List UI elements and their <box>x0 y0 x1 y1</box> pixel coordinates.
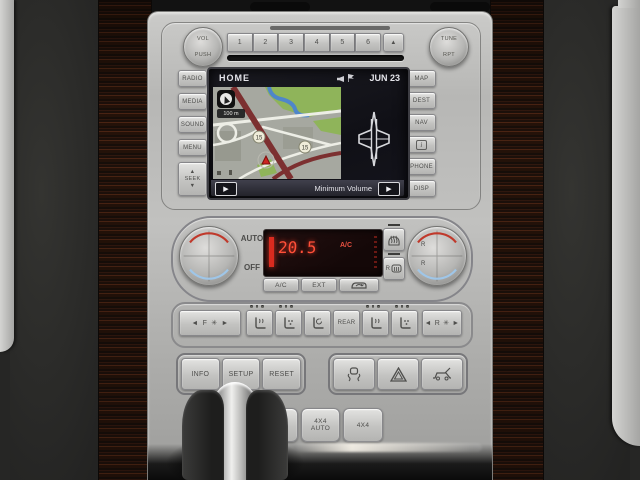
dest-button[interactable]: DEST <box>407 92 436 109</box>
preset-3-button[interactable]: 3 <box>278 33 304 52</box>
mode-4x4-auto-line1: 4X4 <box>314 418 326 425</box>
play-icon-right: ▶ <box>386 185 391 193</box>
knob-r-label-top: R <box>421 242 425 248</box>
heated-seat-left-button[interactable] <box>246 310 273 336</box>
preset-5-button[interactable]: 5 <box>330 33 356 52</box>
climate-auto-button[interactable]: AUTO <box>239 232 265 245</box>
volume-knob-push-label: PUSH <box>184 52 222 58</box>
rear-defrost-button[interactable]: R <box>383 257 405 280</box>
recirculation-button[interactable] <box>339 278 379 292</box>
rear-defrost-icon <box>391 263 402 274</box>
softkey-right[interactable]: ▶ <box>378 182 400 196</box>
temperature-readout: 20.5 <box>277 238 317 257</box>
nav-screen[interactable]: HOME JUN 23 15 15 <box>207 67 410 200</box>
rear-fan-increase[interactable]: ► <box>452 320 459 327</box>
seek-down-icon[interactable]: ▼ <box>190 183 196 189</box>
radio-button[interactable]: RADIO <box>178 70 207 87</box>
tune-knob-label: TUNE <box>430 36 468 42</box>
route-shield-a: 15 <box>256 136 263 142</box>
heated-seat-icon <box>253 317 266 330</box>
menu-button[interactable]: MENU <box>178 139 207 156</box>
liftgate-icon <box>432 367 452 381</box>
heated-seat-left-level <box>250 305 264 308</box>
front-zone-label: F <box>203 320 208 327</box>
sensor-strip <box>270 26 390 30</box>
volume-knob[interactable]: VOL PUSH <box>183 27 223 67</box>
preset-6-button[interactable]: 6 <box>355 33 381 52</box>
lincoln-emblem <box>357 111 391 167</box>
cooled-seat-right-level <box>395 305 409 308</box>
rear-fan-control[interactable]: ◄ R ✳ ► <box>422 310 462 336</box>
tune-knob-rpt-label: RPT <box>430 52 468 58</box>
display-dot-column <box>374 236 377 268</box>
media-button[interactable]: MEDIA <box>178 93 207 110</box>
hazard-button[interactable] <box>377 358 419 390</box>
liftgate-button[interactable] <box>421 358 463 390</box>
info-screen-button[interactable]: i <box>407 136 436 153</box>
gear-shifter[interactable] <box>180 380 290 480</box>
seek-label: SEEK <box>185 176 201 182</box>
gps-flag-icon <box>348 74 354 82</box>
dash-vent-left <box>250 2 310 12</box>
mute-icon <box>337 76 344 82</box>
phone-button[interactable]: PHONE <box>407 158 436 175</box>
mode-4x4-auto-button[interactable]: 4X4 AUTO <box>301 408 340 442</box>
chrome-reflection <box>296 443 482 452</box>
console-edge-left <box>0 0 14 352</box>
info-i-icon: i <box>416 140 426 150</box>
cooled-seat-icon-right <box>398 317 411 330</box>
passenger-temp-knob[interactable]: R R <box>407 226 467 286</box>
ac-button[interactable]: A/C <box>263 278 299 292</box>
preset-1-button[interactable]: 1 <box>227 33 253 52</box>
shifter-grip-right <box>246 390 288 480</box>
screen-status-bar: ▶ Minimum Volume ▶ <box>211 180 404 196</box>
climate-seat-icon <box>311 317 325 330</box>
heated-seat-right-button[interactable] <box>362 310 389 336</box>
rear-defrost-label: R <box>386 266 391 272</box>
seek-up-icon[interactable]: ▲ <box>190 169 196 175</box>
seek-rocker[interactable]: ▲ SEEK ▼ <box>178 162 207 196</box>
nav-button[interactable]: NAV <box>407 114 436 131</box>
rear-fan-decrease[interactable]: ◄ <box>425 320 432 327</box>
driver-temp-knob[interactable] <box>179 226 239 286</box>
front-defrost-button[interactable] <box>383 228 405 251</box>
sound-button[interactable]: SOUND <box>178 116 207 133</box>
heated-seat-right-level <box>366 305 380 308</box>
traction-control-button[interactable] <box>333 358 375 390</box>
front-fan-icon: ✳ <box>211 319 217 327</box>
center-console: VOL PUSH 1 2 3 4 5 6 ▲ TUNE RPT RADIO ME… <box>0 0 640 480</box>
screen-status-text: Minimum Volume <box>314 184 372 193</box>
front-defrost-icon <box>387 233 401 246</box>
ext-button[interactable]: EXT <box>301 278 337 292</box>
cooled-seat-left-level <box>279 305 293 308</box>
climate-off-button[interactable]: OFF <box>240 261 264 274</box>
fan-speed-bar <box>269 237 274 267</box>
mode-4x4-button[interactable]: 4X4 <box>343 408 383 442</box>
cooled-seat-icon <box>282 317 295 330</box>
mode-4x4-auto-line2: AUTO <box>311 425 330 432</box>
heated-seat-icon-right <box>369 317 382 330</box>
screen-title: HOME <box>219 73 250 83</box>
dash-vent-right <box>430 2 490 12</box>
climate-display: 20.5 A/C <box>263 229 383 277</box>
volume-knob-label: VOL <box>184 36 222 42</box>
wood-trim-left <box>98 0 152 480</box>
console-edge-right <box>612 6 640 446</box>
wood-trim-right <box>490 0 544 480</box>
hazard-icon <box>390 367 407 382</box>
temp-knob-markings-right <box>408 227 466 285</box>
map-button[interactable]: MAP <box>407 70 436 87</box>
console-edge-corner <box>618 0 640 8</box>
shifter-grip-left <box>182 390 224 480</box>
rear-zone-label: R <box>435 320 440 327</box>
tune-knob[interactable]: TUNE RPT <box>429 27 469 67</box>
cd-slot[interactable] <box>227 55 404 61</box>
recirculation-icon <box>350 280 368 290</box>
screen-date: JUN 23 <box>369 73 400 83</box>
front-defrost-indicator <box>388 224 400 226</box>
route-shield-b: 15 <box>302 146 309 152</box>
temp-knob-markings <box>180 227 238 285</box>
disp-button[interactable]: DISP <box>407 180 436 197</box>
dash-leather-left <box>10 0 100 480</box>
cooled-seat-right-button[interactable] <box>391 310 418 336</box>
front-fan-decrease[interactable]: ◄ <box>191 320 198 327</box>
compass-icon[interactable] <box>217 90 235 108</box>
vehicle-cluster <box>328 353 468 395</box>
rear-defrost-indicator <box>388 253 400 255</box>
cooled-seat-left-button[interactable] <box>275 310 302 336</box>
preset-2-button[interactable]: 2 <box>253 33 279 52</box>
eject-icon: ▲ <box>390 40 396 46</box>
map-scale-label: 100 m <box>217 109 245 118</box>
play-icon: ▶ <box>223 185 228 193</box>
rear-climate-button[interactable]: REAR <box>333 310 360 336</box>
climate-seat-button[interactable] <box>304 310 331 336</box>
front-fan-control[interactable]: ◄ F ✳ ► <box>179 310 241 336</box>
rear-fan-icon: ✳ <box>443 319 449 327</box>
preset-4-button[interactable]: 4 <box>304 33 330 52</box>
traction-control-icon <box>346 367 362 382</box>
front-fan-increase[interactable]: ► <box>221 320 228 327</box>
ac-indicator: A/C <box>340 242 352 249</box>
knob-r-label-bottom: R <box>421 261 425 267</box>
eject-button[interactable]: ▲ <box>383 33 404 52</box>
preset-row: 1 2 3 4 5 6 <box>227 33 381 52</box>
softkey-left[interactable]: ▶ <box>215 182 237 196</box>
